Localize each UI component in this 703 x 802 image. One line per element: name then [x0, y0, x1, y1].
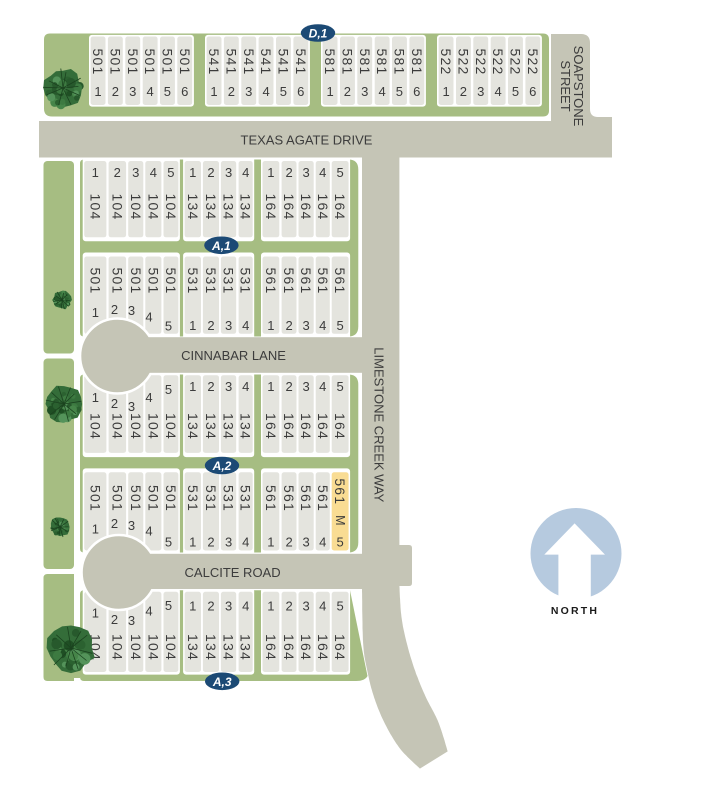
svg-text:1: 1 [189, 535, 196, 550]
svg-text:6: 6 [297, 84, 304, 99]
svg-text:5: 5 [512, 84, 519, 99]
svg-text:6: 6 [181, 84, 188, 99]
svg-text:3: 3 [129, 84, 136, 99]
svg-text:501: 501 [145, 485, 161, 512]
svg-text:522: 522 [490, 49, 506, 76]
svg-text:3: 3 [132, 165, 139, 180]
svg-text:4: 4 [319, 318, 326, 333]
svg-text:531: 531 [185, 485, 201, 512]
svg-text:2: 2 [285, 379, 292, 394]
svg-text:3: 3 [128, 399, 135, 414]
svg-text:2: 2 [111, 396, 118, 411]
svg-text:1: 1 [92, 606, 99, 621]
svg-text:4: 4 [319, 379, 326, 394]
svg-text:104: 104 [128, 634, 144, 661]
svg-text:541: 541 [223, 49, 239, 76]
svg-text:164: 164 [263, 413, 279, 440]
svg-text:1: 1 [92, 305, 99, 320]
svg-text:164: 164 [332, 634, 348, 661]
svg-text:2: 2 [111, 612, 118, 627]
svg-text:501: 501 [163, 485, 179, 512]
svg-text:2: 2 [460, 84, 467, 99]
svg-text:104: 104 [145, 634, 161, 661]
svg-text:104: 104 [87, 194, 103, 221]
svg-text:134: 134 [185, 413, 201, 440]
svg-text:104: 104 [109, 634, 125, 661]
svg-text:3: 3 [302, 379, 309, 394]
svg-text:3: 3 [225, 165, 232, 180]
svg-text:NORTH: NORTH [551, 605, 599, 617]
svg-text:541: 541 [275, 49, 291, 76]
svg-text:4: 4 [145, 604, 152, 619]
svg-text:3: 3 [302, 599, 309, 614]
svg-text:4: 4 [242, 165, 249, 180]
svg-text:501: 501 [128, 485, 144, 512]
svg-text:2: 2 [285, 535, 292, 550]
svg-text:104: 104 [145, 413, 161, 440]
svg-text:501: 501 [107, 49, 123, 76]
svg-text:1: 1 [267, 535, 274, 550]
svg-text:2: 2 [207, 599, 214, 614]
svg-text:2: 2 [207, 165, 214, 180]
svg-text:104: 104 [109, 413, 125, 440]
svg-text:134: 134 [203, 413, 219, 440]
svg-text:4: 4 [145, 310, 152, 325]
svg-text:164: 164 [281, 194, 297, 221]
svg-text:A,3: A,3 [212, 675, 232, 689]
svg-text:TEXAS AGATE DRIVE: TEXAS AGATE DRIVE [241, 133, 373, 148]
svg-text:1: 1 [189, 599, 196, 614]
svg-text:3: 3 [225, 535, 232, 550]
svg-text:104: 104 [109, 194, 125, 221]
svg-text:5: 5 [336, 165, 343, 180]
svg-text:1: 1 [94, 84, 101, 99]
svg-text:581: 581 [357, 49, 373, 76]
svg-text:134: 134 [221, 194, 237, 221]
svg-text:561: 561 [263, 268, 279, 295]
svg-text:1: 1 [326, 84, 333, 99]
svg-text:531: 531 [221, 485, 237, 512]
svg-text:2: 2 [207, 318, 214, 333]
svg-text:164: 164 [315, 194, 331, 221]
svg-text:501: 501 [109, 268, 125, 295]
svg-text:4: 4 [242, 379, 249, 394]
svg-text:541: 541 [258, 49, 274, 76]
svg-text:5: 5 [167, 165, 174, 180]
svg-text:2: 2 [114, 165, 121, 180]
svg-text:501: 501 [177, 49, 193, 76]
svg-text:1: 1 [267, 599, 274, 614]
svg-text:A,1: A,1 [211, 239, 231, 253]
svg-text:5: 5 [165, 598, 172, 613]
svg-text:6: 6 [413, 84, 420, 99]
svg-text:164: 164 [315, 634, 331, 661]
svg-text:501: 501 [163, 268, 179, 295]
svg-text:1: 1 [92, 522, 99, 537]
svg-text:501: 501 [87, 485, 103, 512]
svg-text:501: 501 [142, 49, 158, 76]
svg-text:134: 134 [185, 634, 201, 661]
svg-text:LIMESTONE CREEK WAY: LIMESTONE CREEK WAY [371, 347, 386, 502]
svg-text:5: 5 [336, 599, 343, 614]
svg-text:1: 1 [267, 318, 274, 333]
svg-text:522: 522 [473, 49, 489, 76]
svg-text:3: 3 [225, 599, 232, 614]
svg-text:531: 531 [238, 485, 254, 512]
svg-text:164: 164 [315, 413, 331, 440]
svg-text:1: 1 [267, 165, 274, 180]
svg-text:4: 4 [494, 84, 501, 99]
svg-text:1: 1 [267, 379, 274, 394]
svg-text:4: 4 [378, 84, 385, 99]
svg-text:4: 4 [150, 165, 157, 180]
svg-text:1: 1 [189, 379, 196, 394]
svg-text:581: 581 [339, 49, 355, 76]
svg-text:531: 531 [221, 268, 237, 295]
svg-text:5: 5 [336, 318, 343, 333]
svg-text:2: 2 [285, 318, 292, 333]
svg-text:522: 522 [508, 49, 524, 76]
svg-text:541: 541 [241, 49, 257, 76]
svg-text:134: 134 [238, 413, 254, 440]
svg-text:2: 2 [111, 302, 118, 317]
svg-text:3: 3 [225, 318, 232, 333]
svg-text:M: M [333, 515, 347, 525]
svg-text:4: 4 [145, 390, 152, 405]
svg-text:561: 561 [298, 268, 314, 295]
svg-text:104: 104 [87, 413, 103, 440]
svg-text:2: 2 [285, 599, 292, 614]
svg-text:5: 5 [336, 379, 343, 394]
svg-text:3: 3 [128, 303, 135, 318]
svg-text:561: 561 [281, 268, 297, 295]
svg-text:4: 4 [262, 84, 269, 99]
svg-text:3: 3 [245, 84, 252, 99]
svg-text:561: 561 [332, 268, 348, 295]
svg-text:164: 164 [263, 194, 279, 221]
svg-text:3: 3 [477, 84, 484, 99]
svg-text:4: 4 [242, 535, 249, 550]
svg-text:4: 4 [319, 599, 326, 614]
svg-text:134: 134 [221, 413, 237, 440]
svg-text:5: 5 [165, 535, 172, 550]
svg-text:164: 164 [332, 194, 348, 221]
svg-text:2: 2 [344, 84, 351, 99]
svg-text:4: 4 [319, 165, 326, 180]
svg-text:3: 3 [128, 518, 135, 533]
svg-text:3: 3 [302, 165, 309, 180]
svg-text:104: 104 [163, 634, 179, 661]
svg-text:134: 134 [238, 634, 254, 661]
svg-text:164: 164 [263, 634, 279, 661]
svg-text:164: 164 [332, 413, 348, 440]
svg-text:5: 5 [280, 84, 287, 99]
svg-text:104: 104 [163, 194, 179, 221]
svg-text:A,2: A,2 [212, 459, 232, 473]
svg-text:531: 531 [203, 485, 219, 512]
svg-text:2: 2 [285, 165, 292, 180]
svg-text:1: 1 [92, 165, 99, 180]
svg-text:164: 164 [281, 634, 297, 661]
svg-text:3: 3 [302, 535, 309, 550]
svg-text:164: 164 [281, 413, 297, 440]
svg-text:501: 501 [87, 268, 103, 295]
svg-text:541: 541 [293, 49, 309, 76]
svg-text:104: 104 [163, 413, 179, 440]
svg-text:1: 1 [442, 84, 449, 99]
svg-text:D,1: D,1 [309, 27, 328, 41]
svg-text:531: 531 [238, 268, 254, 295]
svg-text:134: 134 [221, 634, 237, 661]
svg-text:581: 581 [374, 49, 390, 76]
svg-text:104: 104 [128, 194, 144, 221]
svg-text:104: 104 [128, 413, 144, 440]
svg-text:164: 164 [298, 634, 314, 661]
svg-text:531: 531 [203, 268, 219, 295]
svg-text:3: 3 [225, 379, 232, 394]
svg-text:CINNABAR LANE: CINNABAR LANE [181, 348, 286, 363]
svg-text:4: 4 [242, 599, 249, 614]
svg-text:501: 501 [159, 49, 175, 76]
svg-text:STREET: STREET [558, 60, 573, 111]
svg-text:5: 5 [165, 319, 172, 334]
svg-text:CALCITE ROAD: CALCITE ROAD [185, 565, 281, 580]
svg-text:561: 561 [332, 478, 348, 505]
svg-text:541: 541 [206, 49, 222, 76]
svg-text:531: 531 [185, 268, 201, 295]
svg-text:5: 5 [164, 84, 171, 99]
svg-text:6: 6 [529, 84, 536, 99]
svg-text:134: 134 [238, 194, 254, 221]
svg-text:501: 501 [109, 485, 125, 512]
svg-text:4: 4 [146, 84, 153, 99]
svg-text:2: 2 [207, 379, 214, 394]
svg-text:134: 134 [185, 194, 201, 221]
svg-text:5: 5 [396, 84, 403, 99]
svg-text:164: 164 [298, 413, 314, 440]
svg-text:1: 1 [92, 390, 99, 405]
svg-text:561: 561 [281, 485, 297, 512]
svg-text:501: 501 [145, 268, 161, 295]
svg-text:3: 3 [361, 84, 368, 99]
svg-text:581: 581 [391, 49, 407, 76]
svg-text:164: 164 [298, 194, 314, 221]
svg-text:501: 501 [125, 49, 141, 76]
svg-text:2: 2 [111, 516, 118, 531]
svg-text:2: 2 [112, 84, 119, 99]
svg-text:522: 522 [455, 49, 471, 76]
svg-text:561: 561 [315, 268, 331, 295]
svg-text:522: 522 [438, 49, 454, 76]
svg-text:2: 2 [207, 535, 214, 550]
svg-text:1: 1 [210, 84, 217, 99]
svg-text:581: 581 [409, 49, 425, 76]
svg-text:522: 522 [525, 49, 541, 76]
svg-text:4: 4 [145, 524, 152, 539]
svg-text:3: 3 [302, 318, 309, 333]
svg-text:5: 5 [336, 535, 343, 550]
svg-text:561: 561 [263, 485, 279, 512]
svg-text:581: 581 [322, 49, 338, 76]
svg-text:4: 4 [319, 535, 326, 550]
svg-text:1: 1 [189, 165, 196, 180]
svg-text:561: 561 [298, 485, 314, 512]
svg-text:134: 134 [203, 194, 219, 221]
svg-text:104: 104 [145, 194, 161, 221]
svg-text:4: 4 [242, 318, 249, 333]
svg-text:561: 561 [315, 485, 331, 512]
svg-text:5: 5 [165, 382, 172, 397]
svg-text:501: 501 [90, 49, 106, 76]
svg-text:2: 2 [228, 84, 235, 99]
svg-text:134: 134 [203, 634, 219, 661]
svg-text:3: 3 [128, 613, 135, 628]
svg-text:501: 501 [128, 268, 144, 295]
svg-text:1: 1 [189, 318, 196, 333]
